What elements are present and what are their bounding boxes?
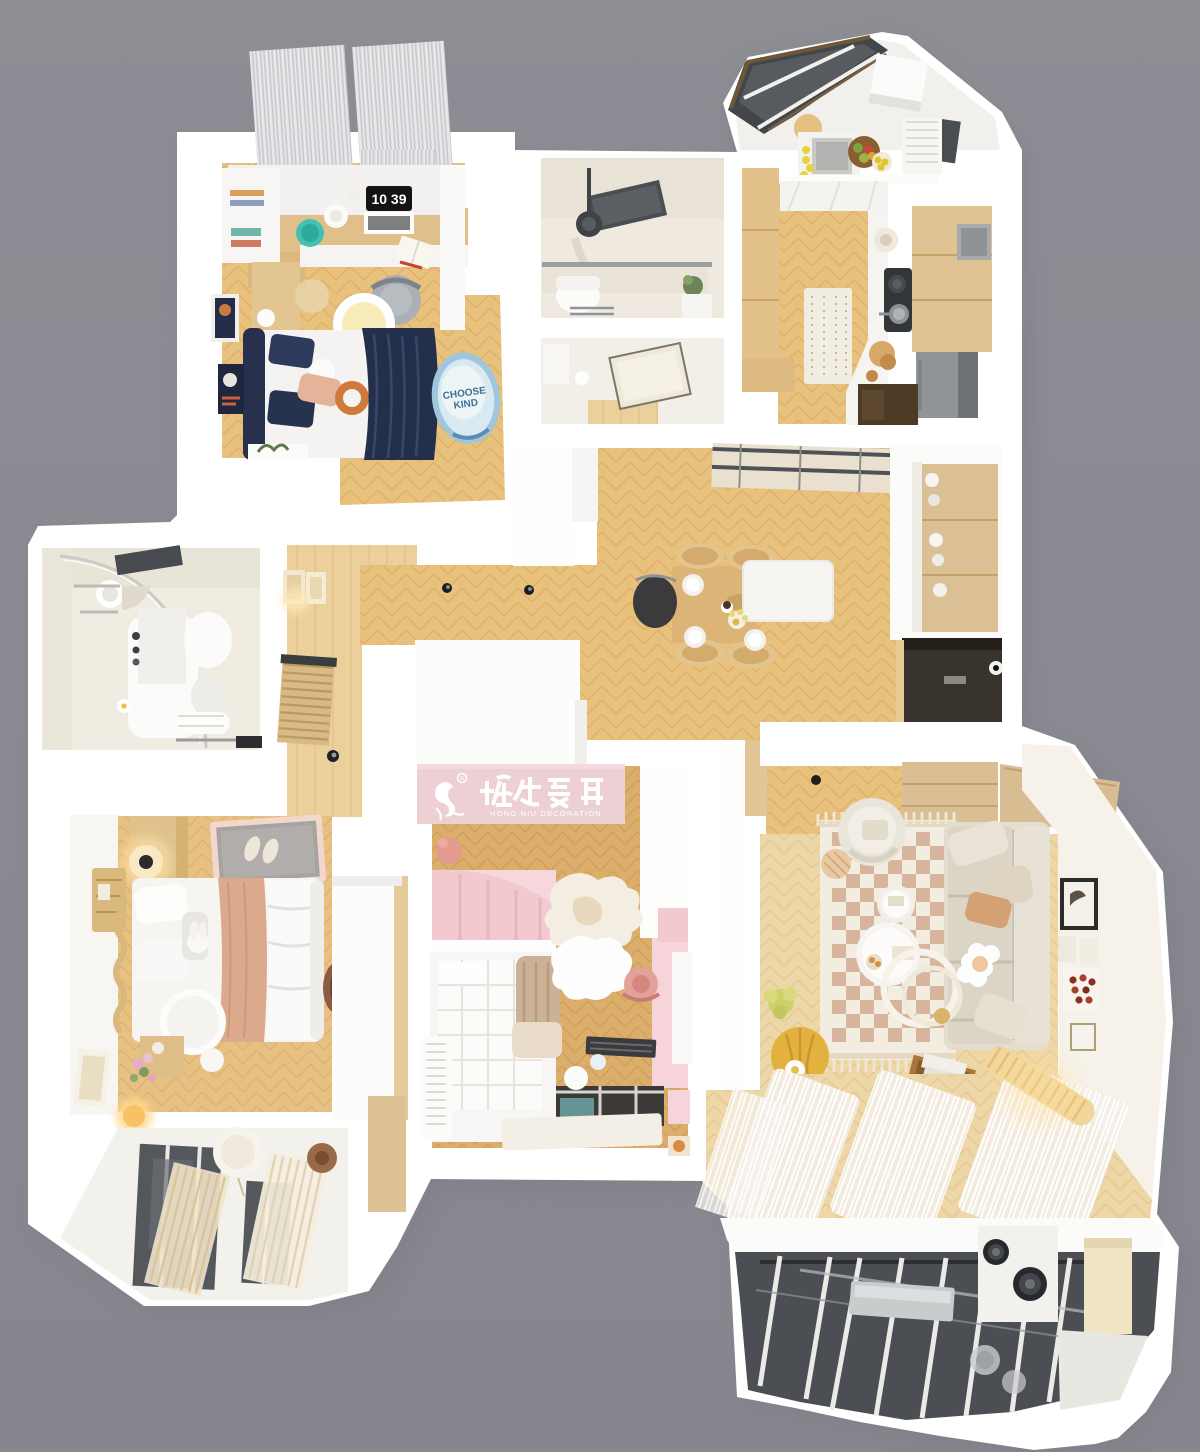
- svg-text:10 39: 10 39: [371, 191, 406, 207]
- svg-text:R: R: [460, 777, 465, 783]
- svg-text:HONG NIU DECORATION: HONG NIU DECORATION: [490, 809, 602, 818]
